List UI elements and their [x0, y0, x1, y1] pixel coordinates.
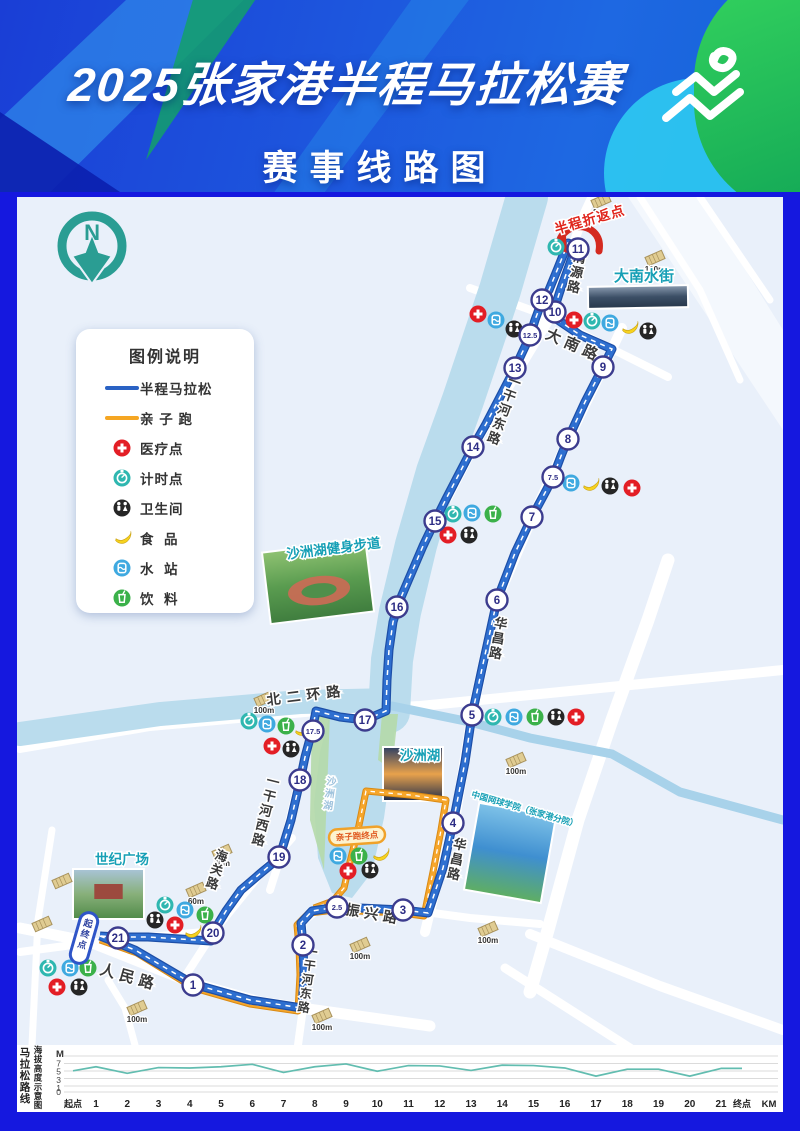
chart-x-tick: 8 [312, 1099, 318, 1110]
chart-x-tick: 5 [218, 1099, 224, 1110]
timing-icon [485, 709, 502, 726]
map-label: 世纪广场 [95, 851, 149, 867]
svg-text:16: 16 [391, 602, 404, 614]
water-icon [602, 315, 619, 332]
water-icon [488, 312, 505, 329]
svg-text:15: 15 [429, 516, 442, 528]
legend-item-line: 亲 子 跑 [76, 403, 254, 433]
legend-item-timing: 计时点 [76, 463, 254, 493]
chart-x-tick: 2 [124, 1099, 130, 1110]
legend-item-toilet: 卫生间 [76, 493, 254, 523]
svg-text:2: 2 [300, 940, 306, 952]
svg-text:100m: 100m [127, 1015, 147, 1024]
svg-text:9: 9 [600, 362, 606, 374]
medical-icon [264, 738, 281, 755]
chart-x-tick: 11 [403, 1099, 414, 1110]
km-marker-2: 2 [293, 935, 314, 956]
svg-text:11: 11 [572, 244, 585, 256]
svg-text:17: 17 [359, 715, 372, 727]
medical-icon [114, 440, 131, 457]
km-marker-3: 3 [393, 900, 414, 921]
svg-text:N: N [84, 220, 100, 245]
header: 2025张家港半程马拉松赛 赛事线路图 [0, 0, 800, 192]
drink-icon [104, 588, 140, 608]
poster-page: 2025张家港半程马拉松赛 赛事线路图 80m100m100m60m60m100… [0, 0, 800, 1131]
chart-x-tick: 3 [156, 1099, 162, 1110]
chart-x-tick: 16 [559, 1099, 571, 1110]
timing-icon [114, 470, 131, 487]
legend-item-label: 亲 子 跑 [140, 408, 193, 428]
toilet-icon [104, 498, 140, 518]
km-marker-12.5: 12.5 [520, 325, 541, 346]
svg-text:13: 13 [509, 363, 522, 375]
medical-icon [624, 480, 641, 497]
km-marker-8: 8 [558, 429, 579, 450]
water-icon [330, 848, 347, 865]
km-marker-4: 4 [443, 813, 464, 834]
drink-icon [351, 848, 368, 865]
chart-x-tick: 13 [465, 1099, 477, 1110]
km-marker-20: 20 [203, 923, 224, 944]
chart-x-tick: 18 [622, 1099, 634, 1110]
legend-item-label: 饮 料 [140, 588, 179, 608]
legend-item-label: 卫生间 [140, 498, 184, 518]
chart-x-tick: 20 [684, 1099, 696, 1110]
chart-y-tick: 0 [56, 1087, 61, 1097]
chart-x-tick: 起点 [63, 1098, 82, 1109]
km-marker-15: 15 [425, 511, 446, 532]
svg-text:17.5: 17.5 [306, 727, 321, 736]
km-marker-7.5: 7.5 [543, 467, 564, 488]
drink-icon [114, 590, 131, 607]
legend-item-water: 水 站 [76, 553, 254, 583]
timing-icon [40, 960, 57, 977]
km-marker-21: 21 [108, 928, 129, 949]
km-marker-17: 17 [355, 710, 376, 731]
timing-icon [157, 897, 174, 914]
chart-x-unit: KM [762, 1099, 777, 1110]
legend-item-label: 半程马拉松 [140, 378, 213, 398]
svg-text:100m: 100m [312, 1023, 332, 1032]
elevation-chart-svg: 马拉松路线海拔高度示意图M75310起点12345678910111213141… [17, 1045, 783, 1112]
timing-icon [445, 506, 462, 523]
toilet-icon [548, 709, 565, 726]
drink-icon [527, 709, 544, 726]
svg-text:18: 18 [294, 775, 307, 787]
route-map-svg: 80m100m100m60m60m100m100m100m100m100m清源路… [17, 197, 783, 1045]
map-label: 沙洲湖 [400, 748, 441, 763]
banana-icon [114, 531, 133, 545]
km-marker-13: 13 [505, 358, 526, 379]
photo-century-square [73, 869, 144, 919]
medical-icon [167, 917, 184, 934]
km-marker-18: 18 [290, 770, 311, 791]
legend-item-banana: 食 品 [76, 523, 254, 553]
legend-item-label: 计时点 [140, 468, 184, 488]
drink-icon [197, 907, 214, 924]
toilet-icon [147, 912, 164, 929]
km-marker-19: 19 [269, 847, 290, 868]
elevation-chart-panel: 马拉松路线海拔高度示意图M75310起点12345678910111213141… [17, 1045, 783, 1112]
chart-x-tick: 12 [434, 1099, 446, 1110]
svg-text:14: 14 [467, 442, 480, 454]
svg-text:2.5: 2.5 [332, 903, 342, 912]
chart-x-tick: 14 [497, 1099, 509, 1110]
toilet-icon [461, 527, 478, 544]
legend-box: 图例说明 半程马拉松亲 子 跑医疗点计时点卫生间食 品水 站饮 料 [76, 329, 254, 613]
chart-x-tick: 9 [343, 1099, 349, 1110]
medical-icon [568, 709, 585, 726]
toilet-icon [283, 741, 300, 758]
svg-text:12: 12 [536, 295, 549, 307]
svg-text:7: 7 [529, 512, 535, 524]
medical-icon [49, 979, 66, 996]
km-marker-17.5: 17.5 [303, 721, 324, 742]
km-marker-5: 5 [462, 705, 483, 726]
route-map-panel: 80m100m100m60m60m100m100m100m100m100m清源路… [17, 197, 783, 1045]
legend-item-medical: 医疗点 [76, 433, 254, 463]
map-subtitle: 赛事线路图 [0, 140, 760, 191]
chart-x-tick: 21 [715, 1099, 727, 1110]
water-icon [104, 558, 140, 578]
drink-icon [485, 506, 502, 523]
km-marker-9: 9 [593, 357, 614, 378]
svg-text:7.5: 7.5 [548, 473, 558, 482]
chart-x-tick: 6 [249, 1099, 255, 1110]
water-icon [114, 560, 131, 577]
chart-x-tick: 17 [590, 1099, 602, 1110]
km-marker-7: 7 [522, 507, 543, 528]
toilet-icon [71, 979, 88, 996]
chart-x-tick: 19 [653, 1099, 665, 1110]
medical-icon [104, 438, 140, 458]
chart-left-label: 马拉松路线 [20, 1047, 31, 1105]
medical-icon [566, 312, 583, 329]
km-marker-1: 1 [183, 975, 204, 996]
km-marker-16: 16 [387, 597, 408, 618]
svg-text:6: 6 [494, 595, 500, 607]
svg-text:4: 4 [450, 818, 457, 830]
chart-x-tick: 1 [93, 1099, 99, 1110]
chart-left-label: 海拔高度示意图 [33, 1045, 43, 1110]
toilet-icon [114, 500, 131, 517]
line-icon [104, 378, 140, 398]
water-icon [259, 716, 276, 733]
kids-run-pill: 亲子跑终点 [329, 826, 386, 846]
km-marker-12: 12 [532, 290, 553, 311]
toilet-icon [602, 478, 619, 495]
chart-x-tick: 4 [187, 1099, 193, 1110]
km-marker-11: 11 [568, 239, 589, 260]
chart-x-tick: 15 [528, 1099, 540, 1110]
svg-text:1: 1 [190, 980, 197, 992]
legend-rows: 半程马拉松亲 子 跑医疗点计时点卫生间食 品水 站饮 料 [76, 373, 254, 613]
svg-text:19: 19 [273, 852, 286, 864]
legend-item-line: 半程马拉松 [76, 373, 254, 403]
water-icon [506, 709, 523, 726]
km-marker-6: 6 [487, 590, 508, 611]
legend-title: 图例说明 [76, 343, 254, 367]
drink-icon [278, 718, 295, 735]
event-title: 2025张家港半程马拉松赛 [32, 46, 659, 115]
toilet-icon [362, 862, 379, 879]
water-icon [464, 505, 481, 522]
svg-text:12.5: 12.5 [523, 331, 538, 340]
svg-text:20: 20 [207, 928, 220, 940]
legend-item-label: 医疗点 [140, 438, 184, 458]
svg-text:8: 8 [565, 434, 572, 446]
svg-text:3: 3 [400, 905, 406, 917]
timing-icon [104, 468, 140, 488]
chart-x-tick: 终点 [732, 1098, 751, 1109]
svg-text:100m: 100m [350, 952, 370, 961]
line-icon [104, 408, 140, 428]
toilet-icon [640, 323, 657, 340]
medical-icon [470, 306, 487, 323]
legend-item-label: 水 站 [140, 558, 179, 578]
legend-item-label: 食 品 [140, 528, 179, 548]
km-marker-2.5: 2.5 [327, 897, 348, 918]
legend-item-drink: 饮 料 [76, 583, 254, 613]
svg-text:21: 21 [112, 933, 125, 945]
medical-icon [340, 863, 357, 880]
svg-text:5: 5 [469, 710, 476, 722]
chart-x-tick: 7 [281, 1099, 287, 1110]
timing-icon [241, 713, 258, 730]
water-icon [563, 475, 580, 492]
svg-text:100m: 100m [506, 767, 526, 776]
banana-icon [104, 528, 140, 548]
photo-danan-water-street [588, 285, 688, 309]
timing-icon [548, 239, 565, 256]
timing-icon [584, 313, 601, 330]
runner-logo-icon [652, 34, 756, 138]
chart-x-tick: 10 [372, 1099, 384, 1110]
map-label: 大南水街 [614, 267, 674, 285]
svg-text:10: 10 [549, 307, 562, 319]
water-icon [177, 902, 194, 919]
svg-text:100m: 100m [478, 936, 498, 945]
km-marker-14: 14 [463, 437, 484, 458]
